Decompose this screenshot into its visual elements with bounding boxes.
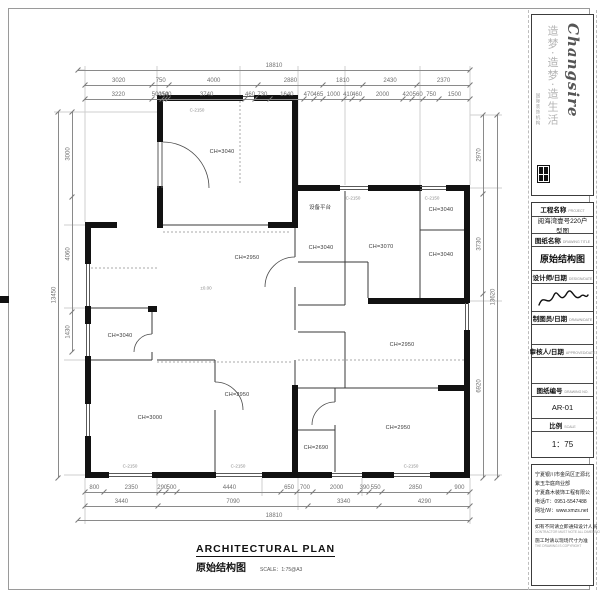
- scale-value: 1：75: [532, 431, 593, 457]
- room-label: CH=2950: [235, 255, 260, 261]
- draftsman-label-en: DRAWN/DATE: [569, 318, 592, 322]
- floor-plan-drawing: [0, 0, 600, 600]
- equipment-platform-label: 设备平台: [309, 203, 331, 211]
- room-label: CH=2950: [225, 392, 250, 398]
- room-label: CH=2690: [304, 445, 329, 451]
- brand-logo: Changsire: [564, 23, 582, 191]
- logo-box: 造梦·造梦·造生活 Changsire 国际装饰机构: [531, 14, 594, 196]
- draftsman-label: 制图员/日期: [533, 313, 567, 323]
- signature-scribble-icon: [536, 286, 590, 310]
- draftsman-value-empty: [532, 324, 593, 344]
- drawing-number-label-row: 图纸编号 DRAWING NO.: [532, 383, 593, 396]
- door-swings-layer: [134, 142, 335, 425]
- project-label-en: PROJECT: [568, 209, 584, 213]
- checker-label-row: 审核人/日期 APPROVED/DATE: [532, 344, 593, 357]
- scale-label-row: 比例 SCALE: [532, 418, 593, 431]
- company-web: 网址/W：www.xmzs.net: [535, 507, 590, 514]
- window-tag: C-2150: [123, 464, 138, 469]
- logo-slogan: 造梦·造梦·造生活: [544, 25, 560, 175]
- checker-label-en: APPROVED/DATE: [566, 351, 596, 355]
- window-tag: C-2150: [425, 196, 440, 201]
- checker-label: 审核人/日期: [530, 346, 564, 356]
- company-phone: 电话/T：0951-5547488: [535, 498, 590, 505]
- room-label: CH=3070: [369, 244, 394, 250]
- logo-tagline: 国际装饰机构: [535, 93, 541, 163]
- drawing-sheet: 18810 302075040002880181024302370 322050…: [0, 0, 600, 600]
- window-tag: C-2150: [231, 464, 246, 469]
- room-label: CH=3000: [138, 415, 163, 421]
- project-label: 工程名称: [540, 204, 566, 214]
- drawing-title-footer: ARCHITECTURAL PLAN 原始结构图 SCALE：1:75@A3: [196, 539, 346, 574]
- note-1-en: CONTRACTOR MUST NOTE ALL DIMENSIONS ON S…: [535, 530, 590, 534]
- title-block: 工程名称 PROJECT 阅海湾壹号220户型图 图纸名称 DRAWING TI…: [531, 202, 594, 458]
- room-label: CH=3040: [429, 252, 454, 258]
- footer-title-en: ARCHITECTURAL PLAN: [196, 543, 335, 557]
- designer-label: 设计师/日期: [533, 272, 567, 282]
- drawing-number-value: AR-01: [532, 396, 593, 418]
- project-name: 阅海湾壹号220户型图: [532, 216, 593, 233]
- room-label: CH=2950: [390, 342, 415, 348]
- drawing-number-label-en: DRAWING NO.: [565, 390, 589, 394]
- designer-signature: [532, 283, 593, 311]
- designer-label-row: 设计师/日期 DESIGN/DATE: [532, 270, 593, 283]
- room-label: CH=3040: [309, 245, 334, 251]
- drawing-number-label: 图纸编号: [537, 385, 563, 395]
- floor-plan-area: 18810 302075040002880181024302370 322050…: [0, 0, 600, 600]
- room-label: CH=3040: [210, 149, 235, 155]
- drawing-title-value: 原始结构图: [532, 246, 593, 270]
- window-tag: C-2150: [346, 196, 361, 201]
- room-label: CH=3040: [108, 333, 133, 339]
- footer-scale: SCALE：1:75@A3: [260, 566, 302, 573]
- window-tag: C-2150: [404, 464, 419, 469]
- room-label: CH=2950: [386, 425, 411, 431]
- designer-label-en: DESIGN/DATE: [569, 277, 592, 281]
- scale-label-en: SCALE: [564, 425, 575, 429]
- scale-label: 比例: [549, 420, 562, 430]
- notes-divider: [535, 519, 590, 520]
- drawing-title-label-en: DRAWING TITLE: [563, 240, 590, 244]
- note-2: 施工时请以现场尺寸为准: [535, 537, 590, 544]
- room-label: CH=3040: [429, 207, 454, 213]
- level-mark: ±0.00: [200, 286, 211, 291]
- checker-value-empty: [532, 357, 593, 383]
- note-2-en: THE DRAWING IS COPYRIGHT: [535, 544, 590, 548]
- extension-lines-layer: [54, 66, 502, 524]
- company-name: 宁夏鑫木装饰工程有限公司: [535, 489, 590, 496]
- company-seal-icon: [537, 165, 550, 183]
- footer-title-cn: 原始结构图: [196, 559, 246, 574]
- draftsman-label-row: 制图员/日期 DRAWN/DATE: [532, 311, 593, 324]
- window-tag: C-2150: [190, 108, 205, 113]
- company-address-2: 紫玉华庭商业部: [535, 480, 590, 487]
- company-box: 宁夏银川市金凤区正源北街 紫玉华庭商业部 宁夏鑫木装饰工程有限公司 电话/T：0…: [531, 464, 594, 586]
- drawing-title-label: 图纸名称: [535, 235, 561, 245]
- note-1: 如有不同请立即通知设计人员: [535, 523, 590, 530]
- drawing-title-label-row: 图纸名称 DRAWING TITLE: [532, 233, 593, 246]
- company-address-1: 宁夏银川市金凤区正源北街: [535, 471, 590, 478]
- dotted-beam-lines-layer: [91, 101, 464, 362]
